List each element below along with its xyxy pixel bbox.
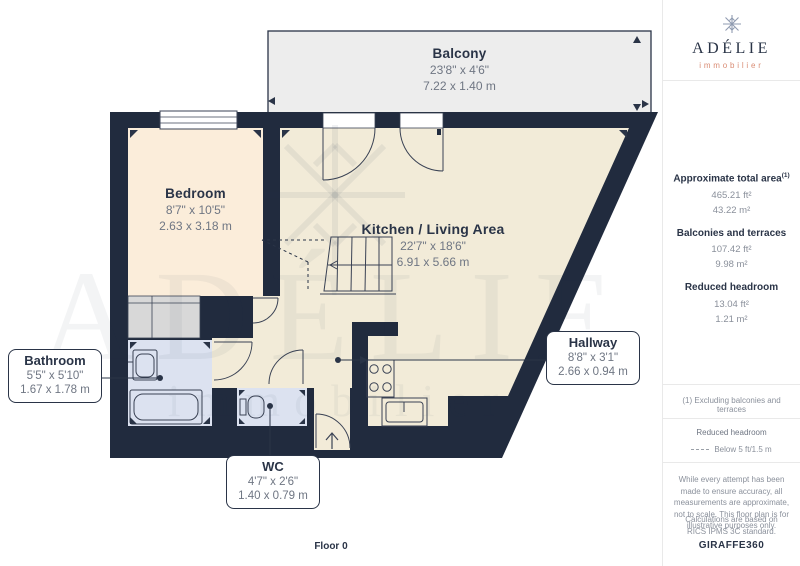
total-area-ft: 465.21 ft² <box>663 190 800 201</box>
sidebar-divider <box>663 80 800 81</box>
standard-note: Calculations are based on RICS IPMS 3C s… <box>663 514 800 537</box>
wardrobe <box>128 296 200 338</box>
floorplan-canvas: ADÉLIE immobilier Balcony 23'8" x 4'6" 7… <box>0 0 662 566</box>
headroom-heading: Reduced headroom <box>663 282 800 295</box>
door-hinge-marker <box>437 129 441 135</box>
total-area-heading: Approximate total area(1) <box>663 172 800 186</box>
floor-label: Floor 0 <box>0 541 662 552</box>
balcony-door-opening <box>400 113 443 128</box>
bathroom-floor <box>128 340 212 426</box>
balconies-ft: 107.42 ft² <box>663 244 800 255</box>
legend-title: Reduced headroom <box>663 428 800 437</box>
area-footnote: (1) Excluding balconies and terraces <box>663 396 800 414</box>
agency-logo: ADÉLIE immobilier <box>663 14 800 70</box>
sidebar-divider <box>663 462 800 463</box>
bedroom-label: Bedroom 8'7" x 10'5" 2.63 x 3.18 m <box>128 186 263 234</box>
balcony-label: Balcony 23'8" x 4'6" 7.22 x 1.40 m <box>268 46 651 94</box>
agency-subtitle: immobilier <box>663 61 800 70</box>
legend-row: Below 5 ft/1.5 m <box>663 445 800 454</box>
balconies-heading: Balconies and terraces <box>663 228 800 241</box>
floorplan-page: ADÉLIE immobilier Balcony 23'8" x 4'6" 7… <box>0 0 800 566</box>
total-area-m: 43.22 m² <box>663 205 800 216</box>
sidebar-divider <box>663 418 800 419</box>
sidebar-divider <box>663 384 800 385</box>
headroom-m: 1.21 m² <box>663 314 800 325</box>
agency-name: ADÉLIE <box>663 40 800 58</box>
kitchen-living-label: Kitchen / Living Area 22'7" x 18'6" 6.91… <box>308 221 558 270</box>
dashed-line-icon <box>691 449 709 450</box>
bedroom-window <box>160 111 237 129</box>
balconies-m: 9.98 m² <box>663 259 800 270</box>
hallway-callout: Hallway 8'8" x 3'1" 2.66 x 0.94 m <box>546 331 640 385</box>
bathroom-callout: Bathroom 5'5" x 5'10" 1.67 x 1.78 m <box>8 349 102 403</box>
wc-callout: WC 4'7" x 2'6" 1.40 x 0.79 m <box>226 455 320 509</box>
balcony-door-opening <box>323 113 375 128</box>
giraffe360-logo: GIRAFFE360 <box>663 540 800 551</box>
footnote-ref: (1) <box>782 172 790 179</box>
sidebar: ADÉLIE immobilier Approximate total area… <box>662 0 800 566</box>
interior-wall-jut <box>352 322 398 336</box>
headroom-ft: 13.04 ft² <box>663 299 800 310</box>
headroom-legend: Reduced headroom Below 5 ft/1.5 m <box>663 428 800 454</box>
snowflake-icon <box>722 14 742 34</box>
area-summary: Approximate total area(1) 465.21 ft² 43.… <box>663 172 800 325</box>
